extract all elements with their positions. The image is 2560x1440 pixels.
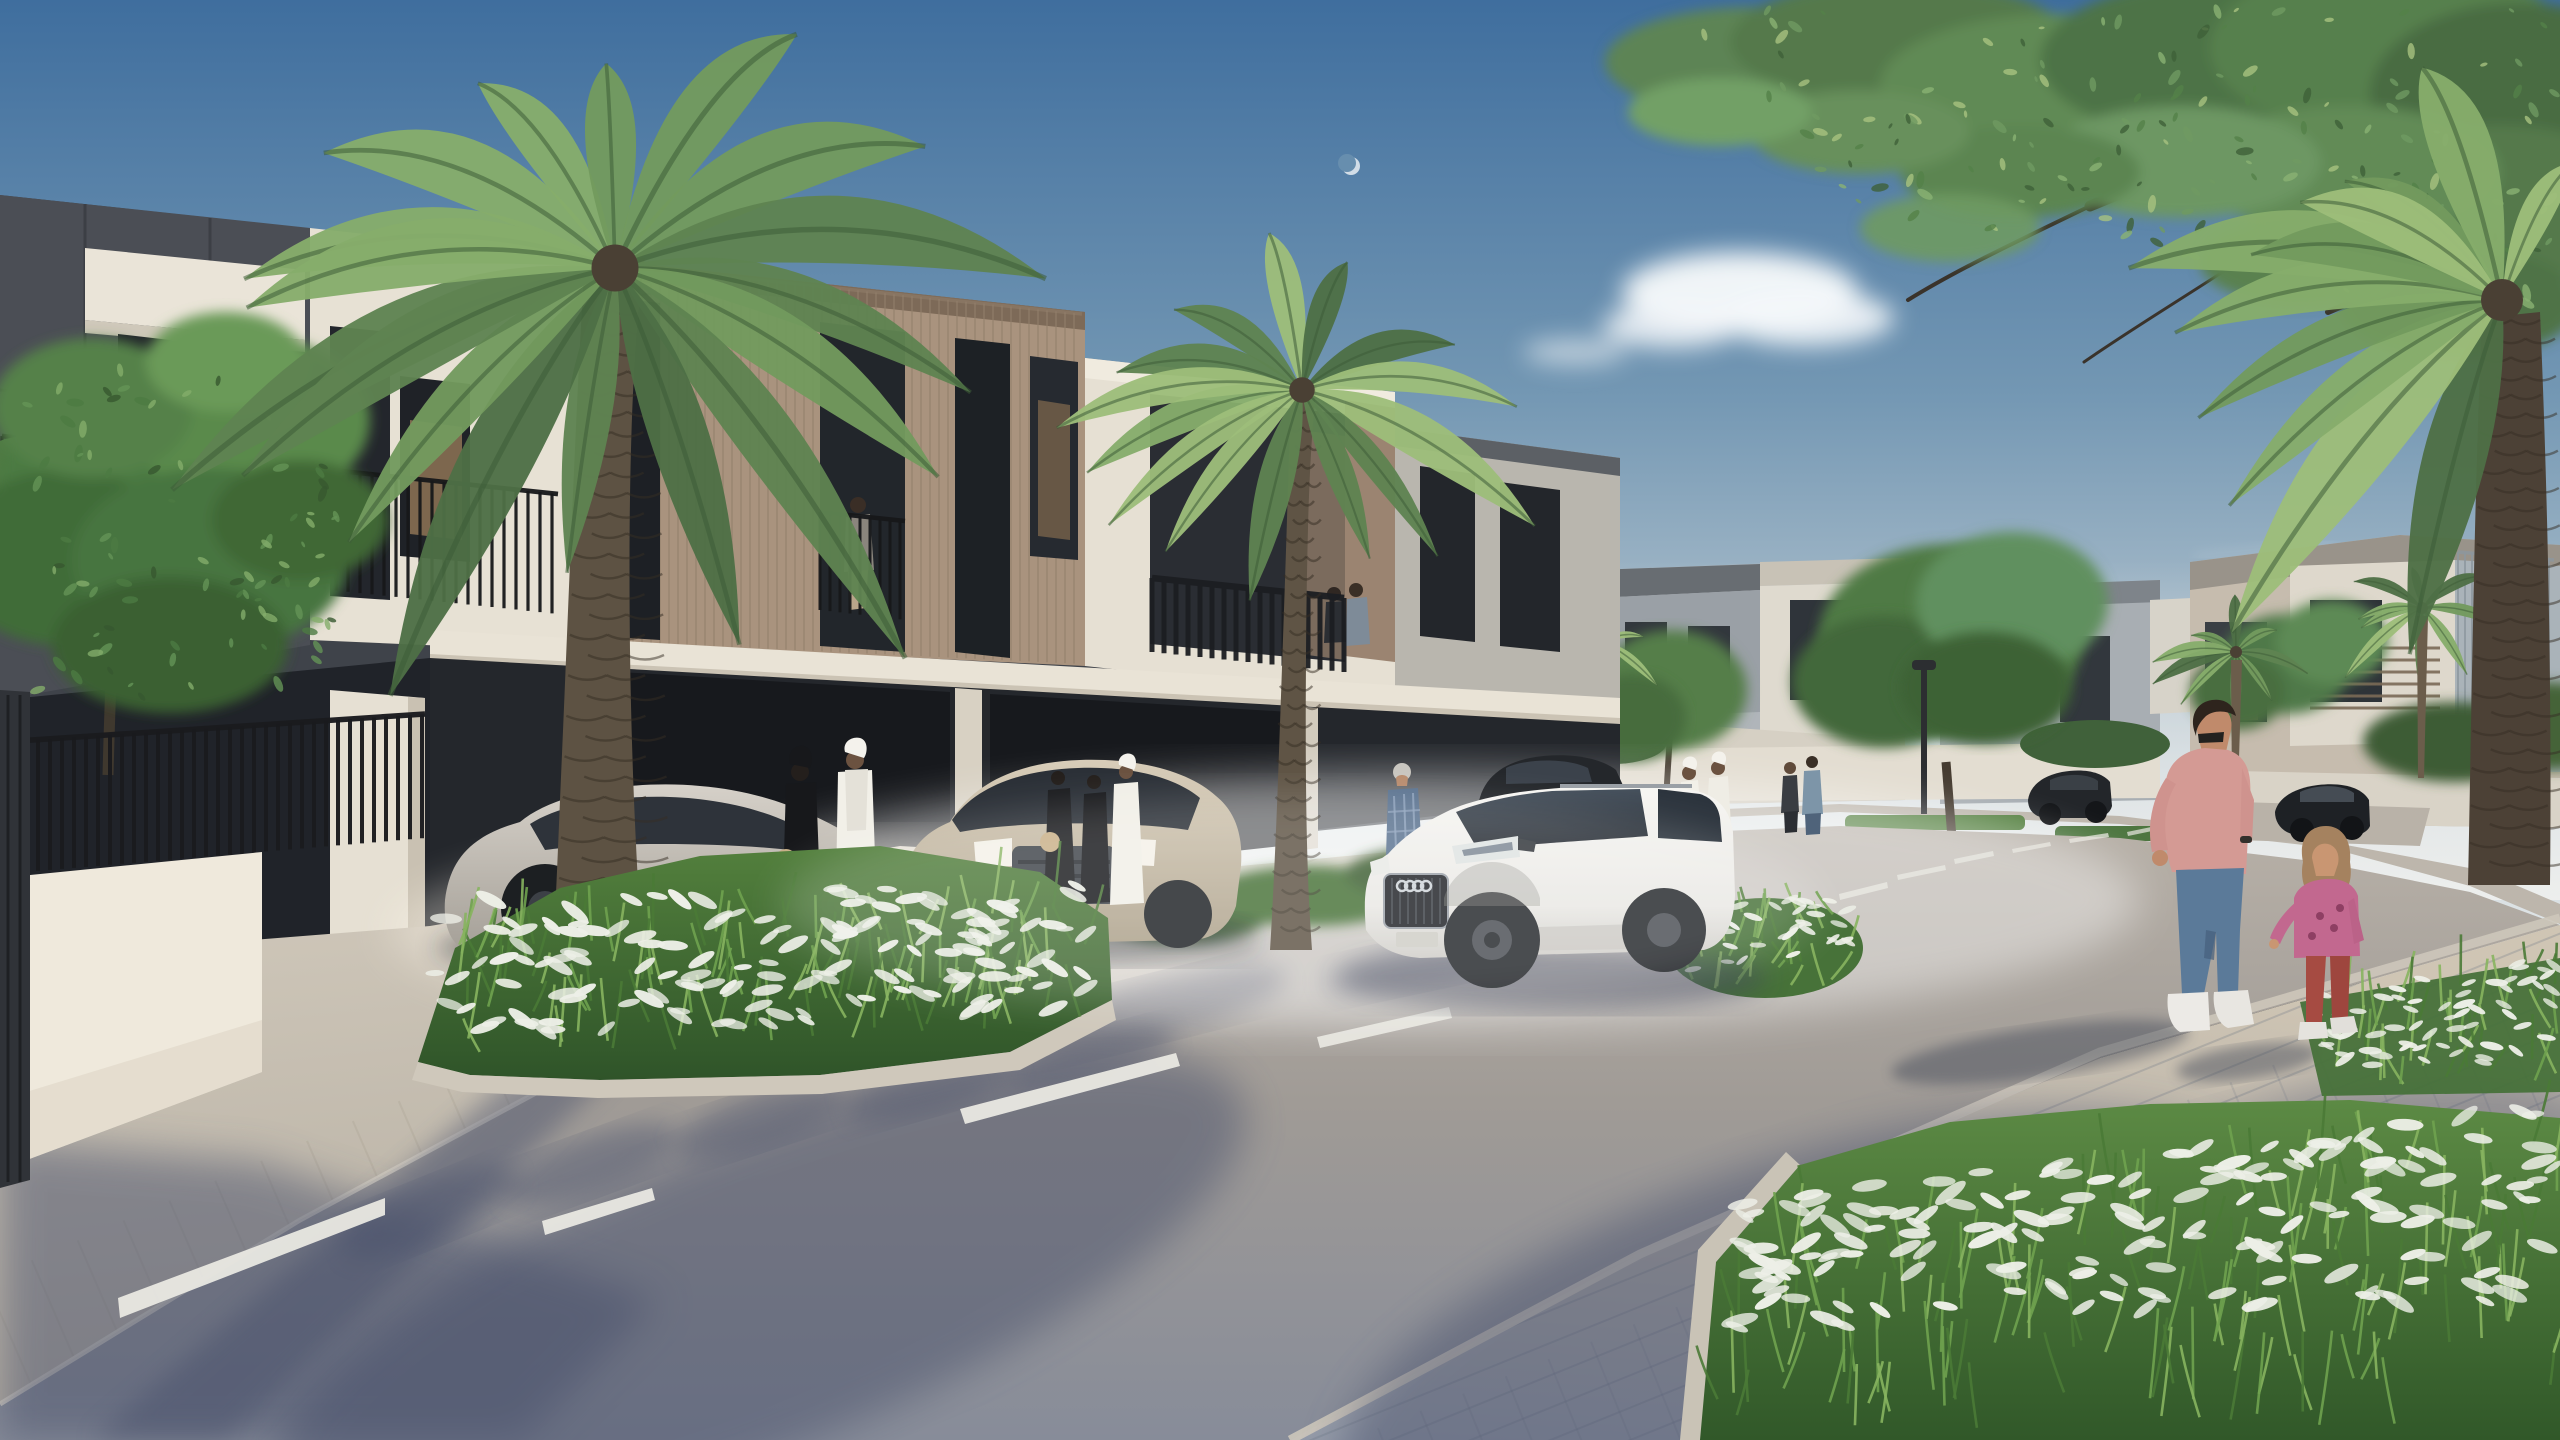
rendered-street-scene xyxy=(0,0,2560,1440)
scene-canvas xyxy=(0,0,2560,1440)
sneaker xyxy=(2168,992,2211,1032)
sandal xyxy=(2330,1016,2358,1034)
sandal xyxy=(2298,1022,2328,1040)
gate-post xyxy=(0,690,30,1188)
wristwatch xyxy=(2240,836,2252,843)
light-bloom xyxy=(780,795,1820,1015)
